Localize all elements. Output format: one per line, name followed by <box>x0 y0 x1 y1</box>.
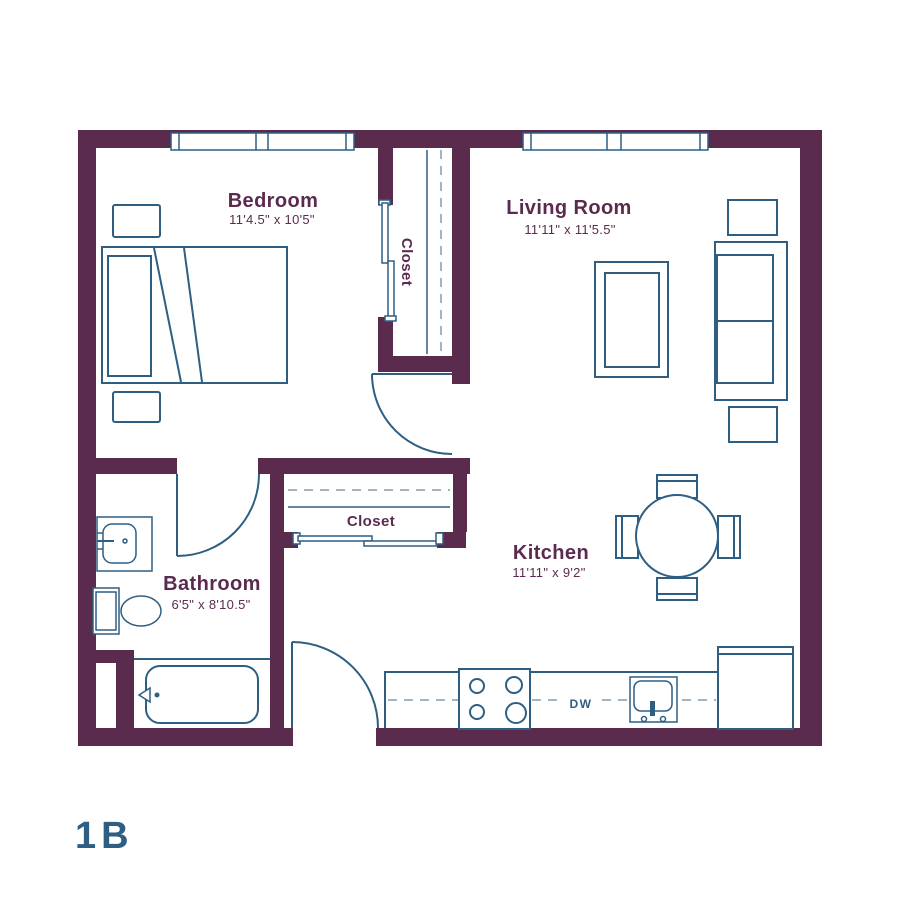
sliding-door-panel-2 <box>388 261 394 319</box>
kitchen-label: Kitchen <box>513 542 589 564</box>
dishwasher-label: DW <box>570 697 593 711</box>
dining-table <box>636 495 718 577</box>
kitchen-counter <box>385 647 793 729</box>
bedroom-door <box>372 374 452 454</box>
living-room-furniture <box>595 200 787 442</box>
coffee-table <box>595 262 668 377</box>
end-table-top <box>728 200 777 235</box>
wall-bottom-left-of-entry <box>78 728 293 746</box>
bathtub <box>134 659 270 723</box>
wall-hall-closet-right <box>453 474 467 532</box>
sliding-door-panel-1 <box>298 536 372 541</box>
sliding-door-panel-1 <box>382 203 388 263</box>
room-labels: Bedroom 11'4.5" x 10'5" Living Room 11'1… <box>75 190 632 857</box>
hall-closet-label: Closet <box>347 513 395 530</box>
floor-plan-1b: Bedroom 11'4.5" x 10'5" Living Room 11'1… <box>0 0 900 900</box>
door-swing-arc <box>292 642 378 728</box>
kitchen-sink <box>630 677 677 722</box>
living-room-window <box>523 133 708 150</box>
wall-bedroom-closet-bottom <box>378 356 470 372</box>
wall-bedroom-hall-right <box>258 458 470 474</box>
sliding-door-cap-bottom <box>385 316 396 321</box>
bathroom-door <box>177 474 259 556</box>
tub-drain <box>155 693 160 698</box>
bedroom-dimensions: 11'4.5" x 10'5" <box>229 212 315 227</box>
stove <box>459 669 530 729</box>
bedroom-furniture <box>102 205 287 422</box>
dining-chair-bottom <box>657 578 697 600</box>
pillow <box>108 256 151 376</box>
door-swing-arc <box>372 374 452 454</box>
wall-right <box>800 130 822 746</box>
living-room-dimensions: 11'11" x 11'5.5" <box>524 222 615 237</box>
floor-plan-page: Bedroom 11'4.5" x 10'5" Living Room 11'1… <box>0 0 900 900</box>
bedroom-label: Bedroom <box>228 190 319 212</box>
faucet <box>650 701 655 716</box>
bedroom-closet-label: Closet <box>398 238 415 286</box>
toilet <box>93 588 161 634</box>
nightstand-bottom <box>113 392 160 422</box>
wall-bedroom-bathroom-left <box>78 458 177 474</box>
bed <box>102 247 287 383</box>
kitchen-dimensions: 11'11" x 9'2" <box>512 565 585 580</box>
bedroom-window <box>171 133 354 150</box>
sliding-door-cap-right <box>436 533 443 544</box>
refrigerator <box>718 647 793 729</box>
bathroom-dimensions: 6'5" x 8'10.5" <box>171 597 250 612</box>
doors <box>177 374 452 728</box>
wall-bath-niche-top <box>78 650 134 663</box>
nightstand-top <box>113 205 160 237</box>
door-swing-arc <box>177 474 259 556</box>
dining-chair-right <box>718 516 740 558</box>
sliding-door-panel-2 <box>364 541 437 546</box>
wall-bath-niche-stub <box>116 663 134 728</box>
exterior-walls <box>78 130 822 746</box>
living-room-label: Living Room <box>506 197 632 219</box>
dining-set <box>616 475 740 600</box>
entry-door <box>292 642 378 728</box>
wall-bathroom-right <box>270 458 284 728</box>
wall-bedroom-closet-stub-bottom <box>378 317 393 356</box>
tub-faucet <box>139 688 150 702</box>
bathroom-label: Bathroom <box>163 573 261 595</box>
unit-name-label: 1B <box>75 815 134 857</box>
wall-bedroom-living-divider <box>452 130 470 384</box>
sofa <box>715 242 787 400</box>
end-table-bottom <box>729 407 777 442</box>
wall-bedroom-closet-stub-top <box>378 148 393 205</box>
wall-bottom-right-of-entry <box>376 728 822 746</box>
bathroom-sink <box>97 517 152 571</box>
dining-chair-left <box>616 516 638 558</box>
